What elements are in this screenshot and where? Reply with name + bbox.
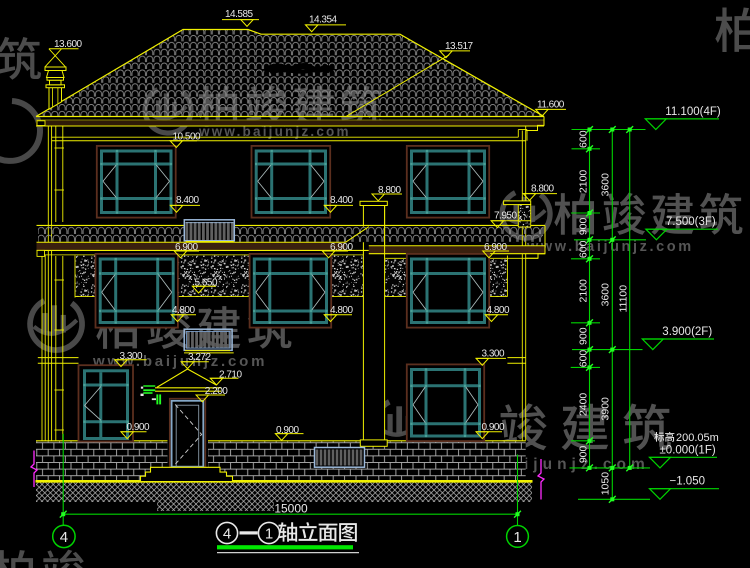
svg-text:8.400: 8.400 [330, 195, 353, 206]
svg-text:3.272: 3.272 [188, 352, 211, 363]
svg-text:2100: 2100 [578, 279, 590, 303]
svg-text:11100: 11100 [618, 285, 630, 313]
svg-text:0.900: 0.900 [127, 422, 150, 433]
svg-text:600: 600 [578, 240, 590, 258]
svg-text:11.600: 11.600 [537, 100, 565, 111]
svg-text:8.400: 8.400 [176, 195, 199, 206]
svg-text:7.500(3F): 7.500(3F) [666, 216, 716, 228]
svg-text:4.800: 4.800 [330, 305, 353, 316]
svg-text:6.900: 6.900 [330, 242, 353, 253]
svg-text:900: 900 [578, 217, 590, 235]
svg-text:13.600: 13.600 [54, 39, 83, 50]
svg-text:8.800: 8.800 [531, 184, 554, 195]
svg-text:2100: 2100 [578, 170, 590, 194]
svg-text:2.200: 2.200 [205, 386, 228, 397]
svg-text:3.900(2F): 3.900(2F) [662, 326, 712, 338]
svg-text:11.100(4F): 11.100(4F) [665, 106, 721, 118]
svg-text:3600: 3600 [600, 283, 612, 307]
svg-text:13.517: 13.517 [445, 41, 474, 52]
svg-text:15000: 15000 [274, 502, 308, 516]
svg-text:6.900: 6.900 [175, 242, 198, 253]
svg-text:900: 900 [578, 327, 590, 345]
svg-text:8.800: 8.800 [378, 185, 401, 196]
svg-text:1050: 1050 [600, 472, 612, 496]
svg-text:1: 1 [265, 526, 273, 543]
svg-text:0.900: 0.900 [276, 425, 299, 436]
svg-text:14.585: 14.585 [225, 9, 254, 20]
svg-text:3.300: 3.300 [120, 351, 143, 362]
svg-text:4.800: 4.800 [487, 305, 510, 316]
svg-text:3.300: 3.300 [482, 348, 505, 359]
svg-text:0.900: 0.900 [482, 422, 505, 433]
svg-text:600: 600 [578, 350, 590, 368]
svg-text:10.500: 10.500 [173, 132, 202, 143]
svg-text:3900: 3900 [600, 397, 612, 421]
svg-text:6.900: 6.900 [484, 242, 507, 253]
svg-text:2400: 2400 [578, 393, 590, 417]
svg-text:−1.050: −1.050 [670, 476, 706, 488]
svg-text:4: 4 [60, 529, 68, 546]
svg-text:4.800: 4.800 [172, 305, 195, 316]
svg-text:4: 4 [223, 526, 231, 543]
svg-text:2.710: 2.710 [219, 369, 242, 380]
svg-text:3600: 3600 [600, 173, 612, 197]
svg-text:1: 1 [513, 529, 521, 546]
svg-text:7.950: 7.950 [494, 211, 517, 222]
svg-text:900: 900 [578, 445, 590, 463]
svg-text:±0.000(1F): ±0.000(1F) [660, 444, 716, 456]
svg-text:200.05m: 200.05m [676, 432, 719, 444]
svg-text:5.650: 5.650 [195, 278, 218, 289]
svg-text:14.354: 14.354 [309, 15, 338, 26]
svg-text:600: 600 [578, 130, 590, 148]
